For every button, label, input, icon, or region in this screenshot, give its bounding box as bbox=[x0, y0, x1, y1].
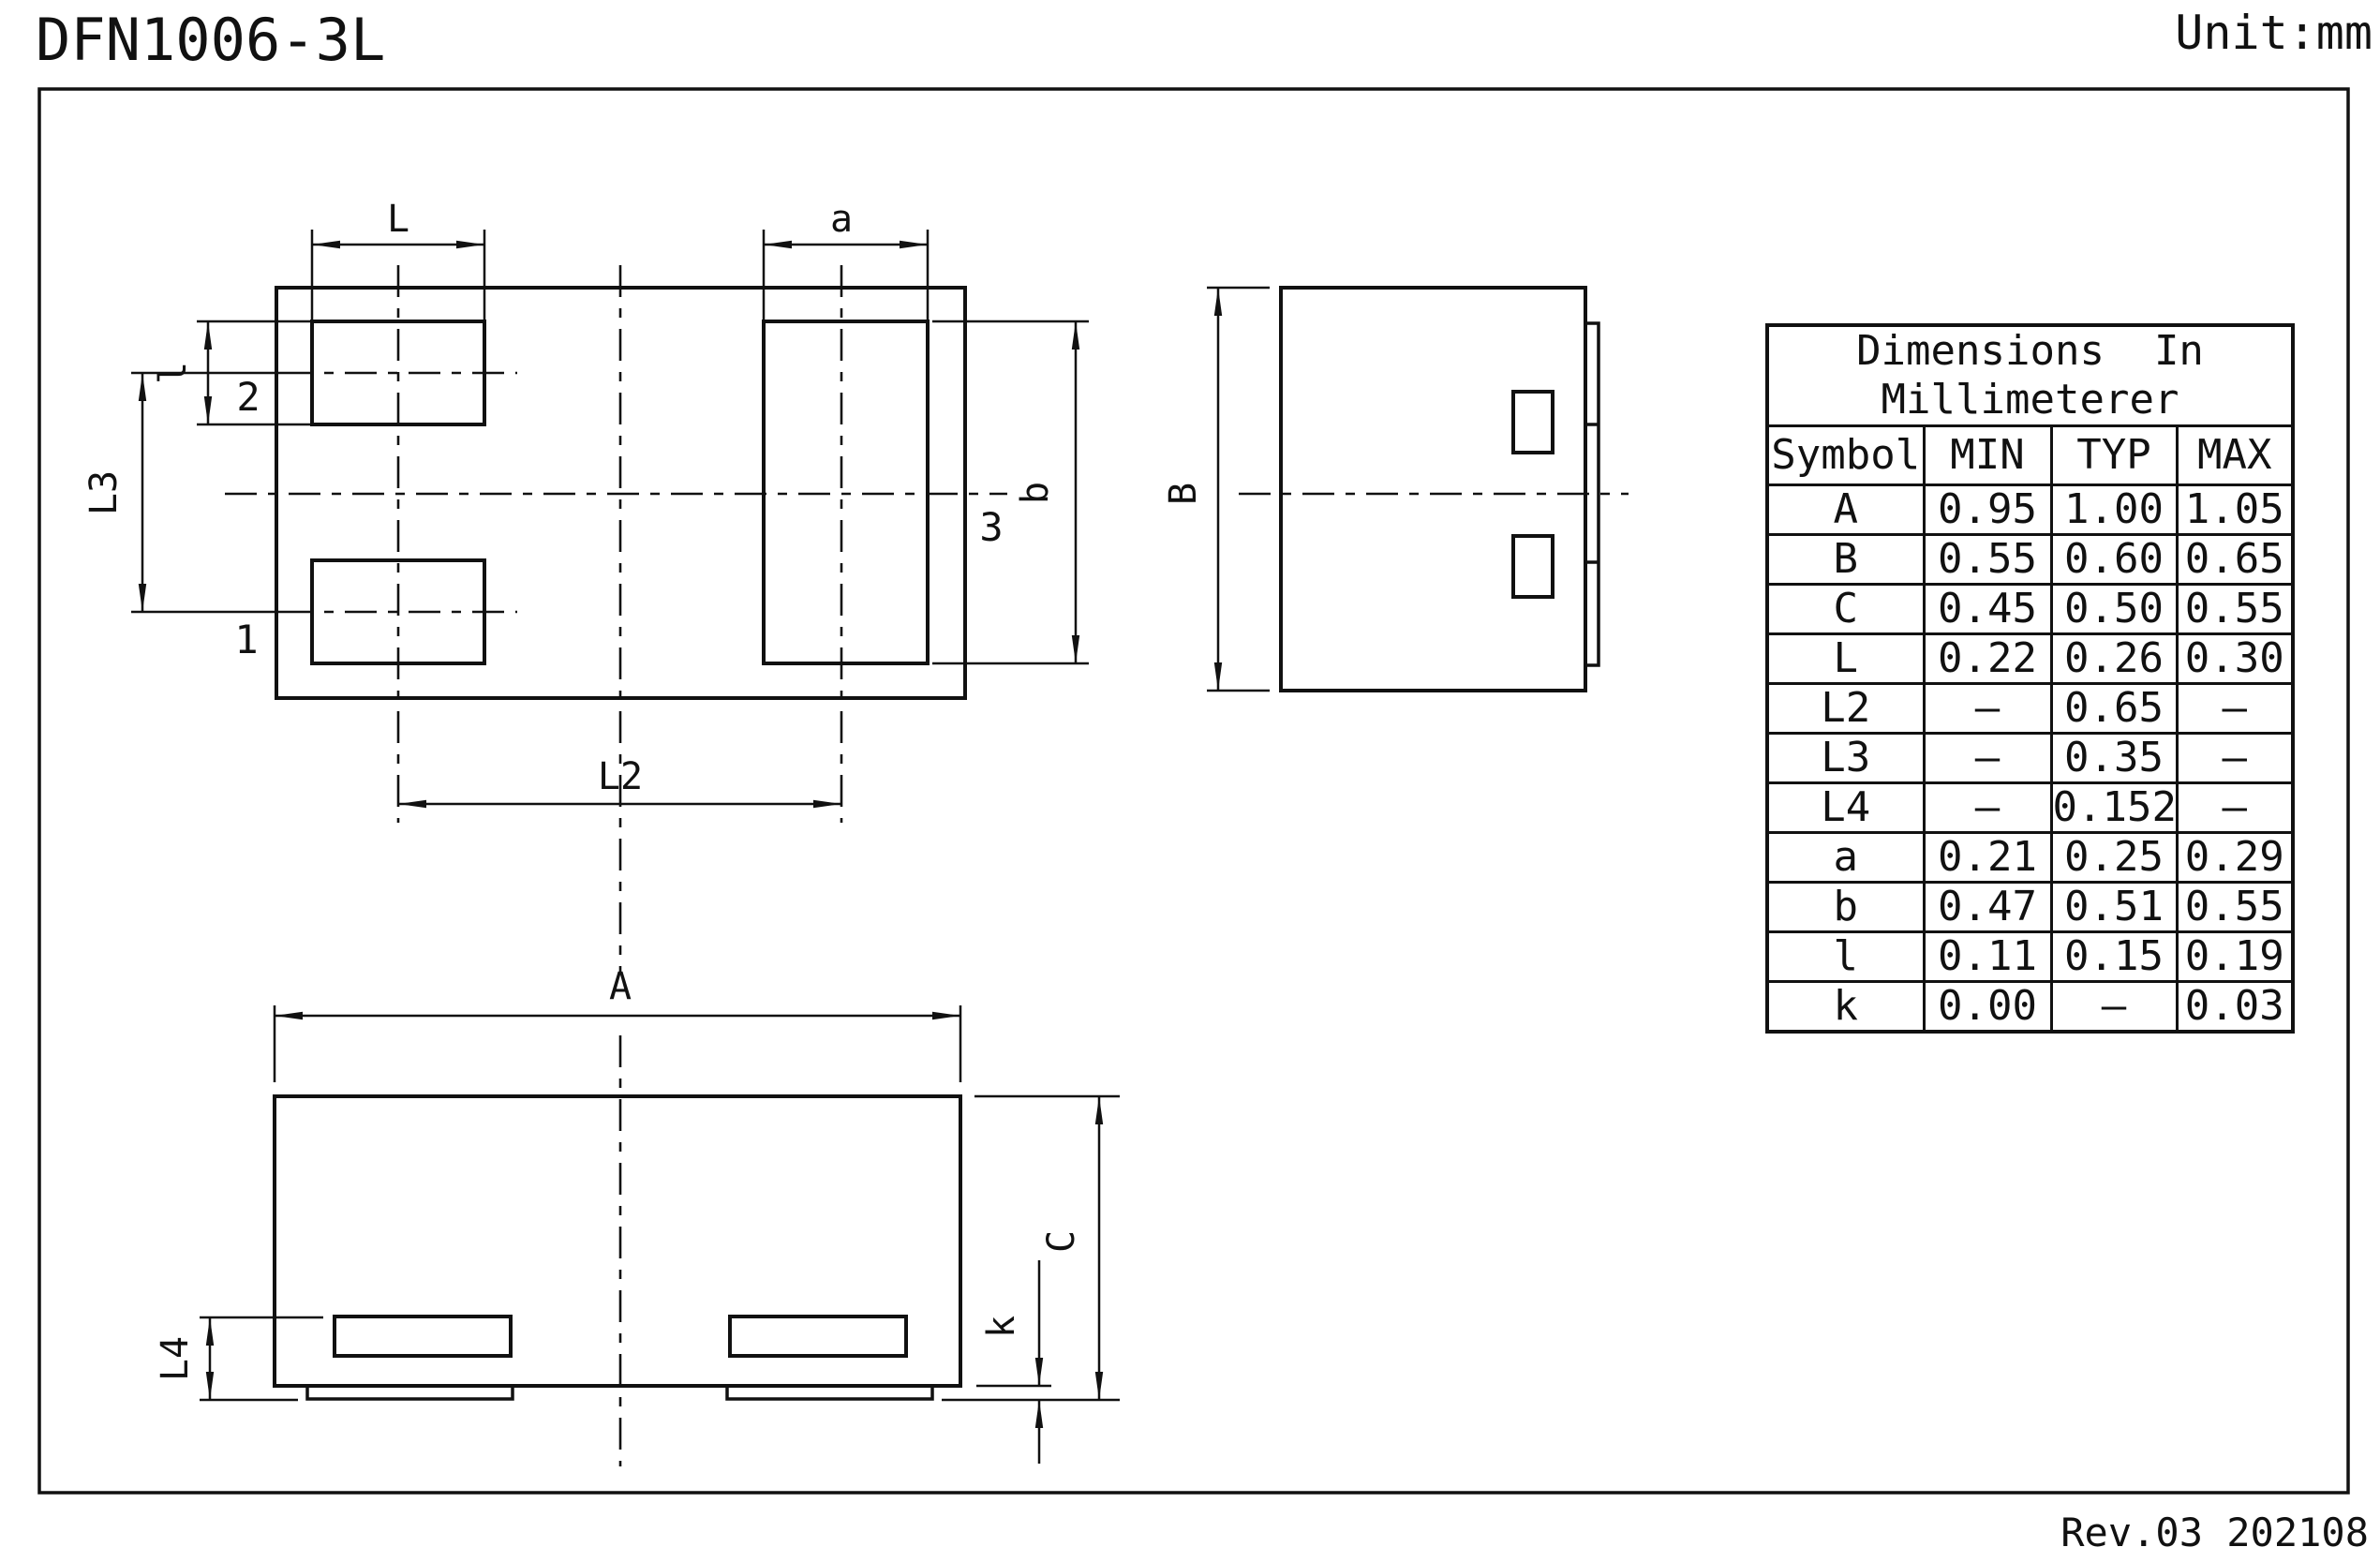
table-cell: – bbox=[2177, 782, 2293, 832]
bottom-view-body-outline bbox=[275, 1096, 960, 1386]
table-cell: k bbox=[1767, 981, 1924, 1032]
table-row: C0.450.500.55 bbox=[1767, 584, 2293, 633]
table-cell: 0.25 bbox=[2051, 832, 2177, 882]
table-cell: C bbox=[1767, 584, 1924, 633]
table-title-line1: Dimensions In bbox=[1769, 327, 2291, 376]
table-cell: A bbox=[1767, 484, 1924, 534]
bottom-view-pad-left bbox=[335, 1317, 511, 1356]
bottom-view: A C k L4 bbox=[154, 965, 1120, 1466]
table-cell: 0.65 bbox=[2051, 683, 2177, 733]
dim-label-A: A bbox=[609, 965, 632, 1008]
pad-pin3 bbox=[764, 321, 928, 663]
table-cell: 0.51 bbox=[2051, 882, 2177, 931]
table-cell: L bbox=[1767, 633, 1924, 683]
table-cell: 0.00 bbox=[1924, 981, 2051, 1032]
table-row: a0.210.250.29 bbox=[1767, 832, 2293, 882]
dim-label-l: l bbox=[152, 362, 195, 384]
side-view-extension-lines bbox=[1207, 288, 1270, 691]
column-header-typ: TYP bbox=[2051, 425, 2177, 484]
dimensions-table: Dimensions In Millimeterer Symbol MIN TY… bbox=[1765, 323, 2291, 1064]
table-cell: – bbox=[2051, 981, 2177, 1032]
table-row: L3–0.35– bbox=[1767, 733, 2293, 782]
table-cell: – bbox=[1924, 733, 2051, 782]
dim-label-C: C bbox=[1040, 1230, 1083, 1253]
table-cell: – bbox=[1924, 683, 2051, 733]
top-view-dimension-lines bbox=[142, 245, 1076, 804]
table-cell: 0.55 bbox=[1924, 534, 2051, 584]
table-cell: 0.19 bbox=[2177, 931, 2293, 981]
table-cell: L3 bbox=[1767, 733, 1924, 782]
table-cell: 0.152 bbox=[2051, 782, 2177, 832]
bottom-view-foot-right bbox=[727, 1386, 932, 1399]
table-cell: 0.45 bbox=[1924, 584, 2051, 633]
table-cell: 0.55 bbox=[2177, 584, 2293, 633]
table-cell: 0.35 bbox=[2051, 733, 2177, 782]
side-view: B bbox=[1162, 288, 1629, 691]
side-view-terminal-lower bbox=[1513, 536, 1553, 597]
top-view: L a l L3 b L2 2 1 3 bbox=[82, 198, 1089, 974]
table-title: Dimensions In Millimeterer bbox=[1767, 325, 2293, 425]
table-cell: b bbox=[1767, 882, 1924, 931]
top-view-centerlines bbox=[225, 265, 1007, 974]
table-cell: L4 bbox=[1767, 782, 1924, 832]
side-view-terminal-upper bbox=[1513, 392, 1553, 453]
dim-label-L: L bbox=[387, 198, 409, 241]
column-header-min: MIN bbox=[1924, 425, 2051, 484]
table-row: b0.470.510.55 bbox=[1767, 882, 2293, 931]
table-cell: L2 bbox=[1767, 683, 1924, 733]
table-cell: 0.65 bbox=[2177, 534, 2293, 584]
table-row: L2–0.65– bbox=[1767, 683, 2293, 733]
table-row: l0.110.150.19 bbox=[1767, 931, 2293, 981]
page-title: DFN1006-3L bbox=[36, 6, 385, 74]
table-cell: a bbox=[1767, 832, 1924, 882]
table-cell: 0.30 bbox=[2177, 633, 2293, 683]
bottom-view-pad-right bbox=[730, 1317, 906, 1356]
dim-label-k: k bbox=[980, 1316, 1023, 1338]
table-row: L0.220.260.30 bbox=[1767, 633, 2293, 683]
table-cell: 0.21 bbox=[1924, 832, 2051, 882]
bottom-view-dimension-lines bbox=[210, 1016, 1099, 1464]
table-cell: 0.95 bbox=[1924, 484, 2051, 534]
dim-label-L3: L3 bbox=[82, 470, 126, 515]
table-cell: 0.60 bbox=[2051, 534, 2177, 584]
table-cell: 0.55 bbox=[2177, 882, 2293, 931]
dim-label-a: a bbox=[830, 198, 853, 241]
table-row: B0.550.600.65 bbox=[1767, 534, 2293, 584]
table-row: L4–0.152– bbox=[1767, 782, 2293, 832]
column-header-symbol: Symbol bbox=[1767, 425, 1924, 484]
table-cell: – bbox=[2177, 683, 2293, 733]
table-cell: l bbox=[1767, 931, 1924, 981]
table-cell: 0.11 bbox=[1924, 931, 2051, 981]
dim-label-L2: L2 bbox=[598, 755, 643, 798]
pin-label-1: 1 bbox=[234, 617, 258, 662]
table-row: k0.00–0.03 bbox=[1767, 981, 2293, 1032]
drawing-sheet: DFN1006-3L Unit:mm Rev.03 202108 bbox=[0, 0, 2380, 1558]
dim-label-b: b bbox=[1014, 482, 1057, 504]
table-row: A0.951.001.05 bbox=[1767, 484, 2293, 534]
pin-label-2: 2 bbox=[236, 374, 260, 420]
table-cell: 0.50 bbox=[2051, 584, 2177, 633]
table-cell: 0.26 bbox=[2051, 633, 2177, 683]
dim-label-B: B bbox=[1162, 483, 1205, 505]
dim-label-L4: L4 bbox=[154, 1336, 197, 1381]
table-cell: 0.29 bbox=[2177, 832, 2293, 882]
table-title-line2: Millimeterer bbox=[1769, 376, 2291, 424]
bottom-view-extension-lines bbox=[200, 1005, 1120, 1400]
table-cell: – bbox=[2177, 733, 2293, 782]
table-cell: 1.05 bbox=[2177, 484, 2293, 534]
table-cell: B bbox=[1767, 534, 1924, 584]
table-cell: 0.47 bbox=[1924, 882, 2051, 931]
bottom-view-foot-left bbox=[307, 1386, 513, 1399]
table-cell: 1.00 bbox=[2051, 484, 2177, 534]
column-header-max: MAX bbox=[2177, 425, 2293, 484]
bottom-view-labels: A C k L4 bbox=[154, 965, 1083, 1381]
table-cell: 0.03 bbox=[2177, 981, 2293, 1032]
pin-label-3: 3 bbox=[979, 504, 1003, 550]
side-view-body-outline bbox=[1281, 288, 1585, 691]
table-cell: 0.15 bbox=[2051, 931, 2177, 981]
revision-note: Rev.03 202108 bbox=[2060, 1510, 2369, 1555]
unit-note: Unit:mm bbox=[2175, 6, 2373, 60]
table-cell: 0.22 bbox=[1924, 633, 2051, 683]
table-cell: – bbox=[1924, 782, 2051, 832]
